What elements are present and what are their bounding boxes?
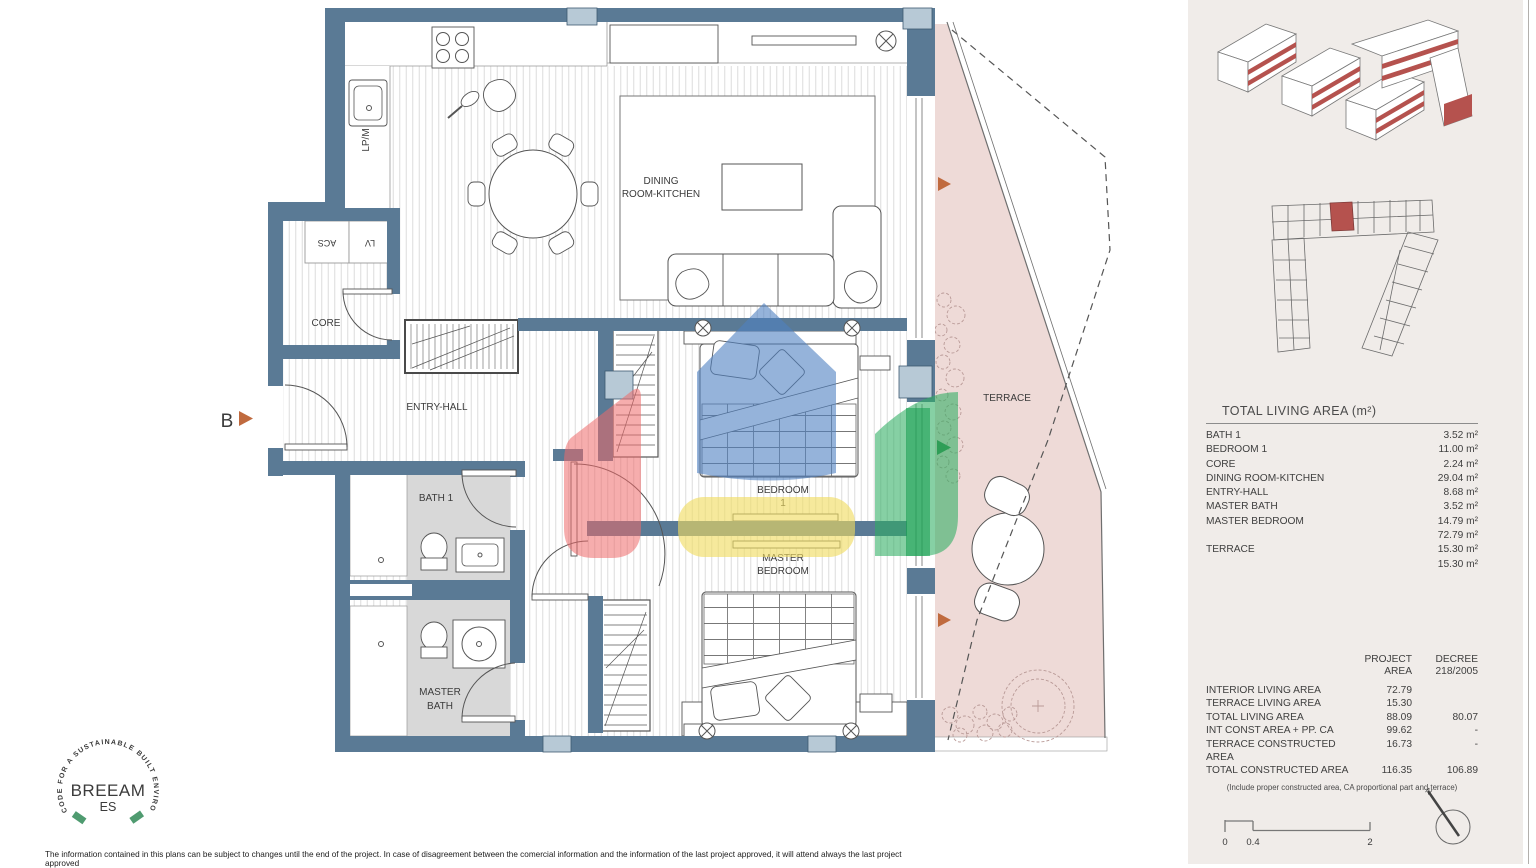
master-closet (601, 600, 650, 731)
bath1-door-swing (462, 473, 516, 527)
nightstand (860, 356, 890, 370)
label-master-bath-1: MASTER (419, 687, 461, 698)
area-table-title: TOTAL LIVING AREA (m²) (1206, 404, 1478, 424)
view-marker-green-icon (937, 440, 951, 455)
label-dining-1: DINING (644, 176, 679, 187)
entrance-door-leaf (285, 444, 347, 450)
lv-unit (349, 221, 389, 263)
hall-door-leaf (571, 462, 577, 556)
overlay-red-zone[interactable] (564, 389, 641, 558)
core-door-swing (343, 291, 392, 340)
person-figure (448, 79, 516, 118)
table-row: INTERIOR LIVING AREA72.79 (1206, 684, 1478, 697)
table-row: DINING ROOM-KITCHEN29.04 m² (1206, 472, 1478, 486)
label-lv: LV (365, 238, 375, 248)
table-row-subtotal: 72.79 m² (1206, 529, 1478, 543)
bed (702, 592, 856, 726)
view-marker-icon (938, 613, 951, 627)
label-entry-hall: ENTRY-HALL (406, 402, 468, 413)
table-row: TOTAL CONSTRUCTED AREA116.35106.89 (1206, 764, 1478, 777)
wall-light-symbols (695, 31, 896, 739)
hall-door-swing (574, 464, 665, 586)
row-value: 15.30 m² (1438, 558, 1478, 572)
table-row: CORE2.24 m² (1206, 458, 1478, 472)
entry-closet (405, 320, 518, 373)
terrace-planter-bottom (942, 670, 1074, 742)
label-master-bath-2: BATH (427, 701, 453, 712)
view-marker-icon (938, 177, 951, 191)
row-value: 8.68 m² (1443, 486, 1478, 500)
plot-boundary-dashed (948, 30, 1110, 740)
header-decree: DECREE218/2005 (1412, 654, 1478, 677)
breeam-name: BREEAM (71, 781, 146, 800)
table-header: PROJECTAREA DECREE218/2005 (1206, 654, 1478, 677)
terrace-fill (933, 24, 1105, 737)
label-bath1: BATH 1 (419, 493, 454, 504)
row-value: 29.04 m² (1438, 472, 1478, 486)
kitchen-sink (349, 80, 387, 126)
project-area-table: PROJECTAREA DECREE218/2005 INTERIOR LIVI… (1206, 654, 1478, 792)
sliding-door (733, 541, 840, 548)
console (610, 25, 718, 63)
terrace-chair (971, 579, 1023, 624)
label-acs: ACS (318, 238, 337, 248)
acs-unit (305, 221, 349, 263)
room-labels: DINING ROOM-KITCHEN CORE ENTRY-HALL BATH… (312, 128, 1032, 712)
breeam-ring-text: CODE FOR A SUSTAINABLE BUILT ENVIRONMENT (0, 0, 159, 814)
header-project: PROJECTAREA (1354, 654, 1412, 677)
section-b-triangle-icon (239, 411, 253, 426)
row-value: 15.30 m² (1438, 543, 1478, 557)
stove (432, 27, 474, 68)
label-master-bedroom-2: BEDROOM (757, 566, 809, 577)
row-value: 11.00 m² (1439, 443, 1478, 457)
table-row: MASTER BATH3.52 m² (1206, 500, 1478, 514)
sliding-door (733, 514, 838, 521)
total-living-area-table: TOTAL LIVING AREA (m²) BATH 13.52 m² BED… (1206, 404, 1478, 572)
sofa-pillow (844, 271, 877, 303)
toilet (421, 533, 447, 561)
row-label: DINING ROOM-KITCHEN (1206, 472, 1324, 486)
coffee-table (722, 164, 802, 210)
bed (700, 344, 858, 477)
row-label: TERRACE (1206, 543, 1255, 557)
table-row: TERRACE CONSTRUCTED AREA16.73- (1206, 738, 1478, 765)
windows (268, 96, 935, 700)
pillow (710, 681, 760, 721)
pillow (710, 340, 760, 380)
kitchen-fixtures (271, 22, 907, 336)
entrance-door-swing (285, 385, 347, 447)
master-bedroom-door-swing (532, 541, 588, 597)
pillow (764, 674, 812, 722)
row-label: CORE (1206, 458, 1235, 472)
bedroom1-closet (613, 327, 658, 457)
apartment-floor (268, 22, 907, 736)
nightstand (860, 694, 892, 712)
label-bedroom1-1: BEDROOM (757, 485, 809, 496)
washbasin (453, 620, 505, 668)
row-value: 14.79 m² (1438, 515, 1478, 529)
row-value: 72.79 m² (1438, 529, 1478, 543)
core-door-leaf (343, 289, 392, 294)
terrace-railing-inner (953, 22, 1106, 489)
bed-platform (682, 702, 907, 736)
master-bath-door-swing (462, 663, 515, 719)
pillow (758, 348, 806, 396)
row-label: ENTRY-HALL (1206, 486, 1268, 500)
table-row: INT CONST AREA + PP. CA99.62- (1206, 724, 1478, 737)
bedroom1-furniture (684, 331, 890, 477)
row-label: BATH 1 (1206, 429, 1241, 443)
washbasin (456, 538, 504, 572)
table-row: TERRACE15.30 m² (1206, 543, 1478, 557)
table-row: TOTAL LIVING AREA88.0980.07 (1206, 711, 1478, 724)
tv-unit (752, 36, 856, 45)
table-row: BEDROOM 111.00 m² (1206, 443, 1478, 457)
shower (350, 468, 407, 576)
headboard (684, 331, 856, 344)
row-label: MASTER BEDROOM (1206, 515, 1304, 529)
dining-chairs (468, 132, 598, 257)
table-row: TERRACE LIVING AREA15.30 (1206, 697, 1478, 710)
master-bedroom-furniture (682, 592, 907, 737)
headboard (684, 724, 856, 737)
terrace-table (972, 513, 1044, 585)
overlay-yellow-zone[interactable] (678, 497, 855, 557)
label-terrace: TERRACE (983, 393, 1031, 404)
label-lpm: LP/M (361, 128, 372, 151)
breeam-region: ES (100, 800, 117, 814)
label-bedroom1-2: 1 (780, 498, 786, 509)
terrace-railing (947, 22, 1105, 738)
overlay-blue-zone[interactable] (697, 303, 836, 481)
svg-text:CODE FOR A SUSTAINABLE BUILT E: CODE FOR A SUSTAINABLE BUILT ENVIRONMENT (0, 0, 159, 814)
living-room-furniture (468, 25, 881, 308)
doors (285, 289, 665, 722)
label-master-bedroom-1: MASTER (762, 553, 804, 564)
table-row-subtotal: 15.30 m² (1206, 558, 1478, 572)
structural-pillars (543, 8, 932, 752)
master-bath-door-leaf (462, 716, 515, 722)
table-row: MASTER BEDROOM14.79 m² (1206, 515, 1478, 529)
table-footnote: (Include proper constructed area, CA pro… (1206, 783, 1478, 792)
table-row: ENTRY-HALL8.68 m² (1206, 486, 1478, 500)
row-label: MASTER BATH (1206, 500, 1278, 514)
rug (620, 96, 875, 300)
row-value: 3.52 m² (1443, 429, 1478, 443)
breeam-logo: CODE FOR A SUSTAINABLE BUILT ENVIRONMENT… (0, 0, 159, 824)
terrace-area (933, 22, 1110, 751)
shower (350, 606, 407, 736)
page-border-line (1528, 0, 1529, 864)
bath1-door-leaf (462, 470, 516, 476)
dining-table (489, 150, 577, 238)
master-bath-room (350, 600, 510, 736)
sofa-pillow (676, 269, 709, 299)
sofa (668, 254, 834, 306)
sofa-chaise (833, 206, 881, 308)
terrace-slab-edge (933, 737, 1107, 751)
walls (268, 8, 935, 752)
master-bedroom-door-leaf (532, 594, 588, 600)
table-row: BATH 13.52 m² (1206, 429, 1478, 443)
bath1-room (350, 461, 510, 580)
label-core: CORE (312, 318, 341, 329)
row-value: 2.24 m² (1443, 458, 1478, 472)
disclaimer-text: The information contained in this plans … (45, 850, 905, 868)
overlay-green-window[interactable] (906, 408, 930, 556)
label-dining-2: ROOM-KITCHEN (622, 189, 700, 200)
shaft (271, 224, 281, 336)
overlay-green-zone[interactable] (875, 392, 958, 556)
toilet (421, 622, 447, 650)
terrace-planter-left (935, 293, 965, 483)
terrace-chair (980, 472, 1033, 520)
row-value: 3.52 m² (1443, 500, 1478, 514)
row-label: BEDROOM 1 (1206, 443, 1267, 457)
section-marker-b: B (221, 411, 234, 432)
